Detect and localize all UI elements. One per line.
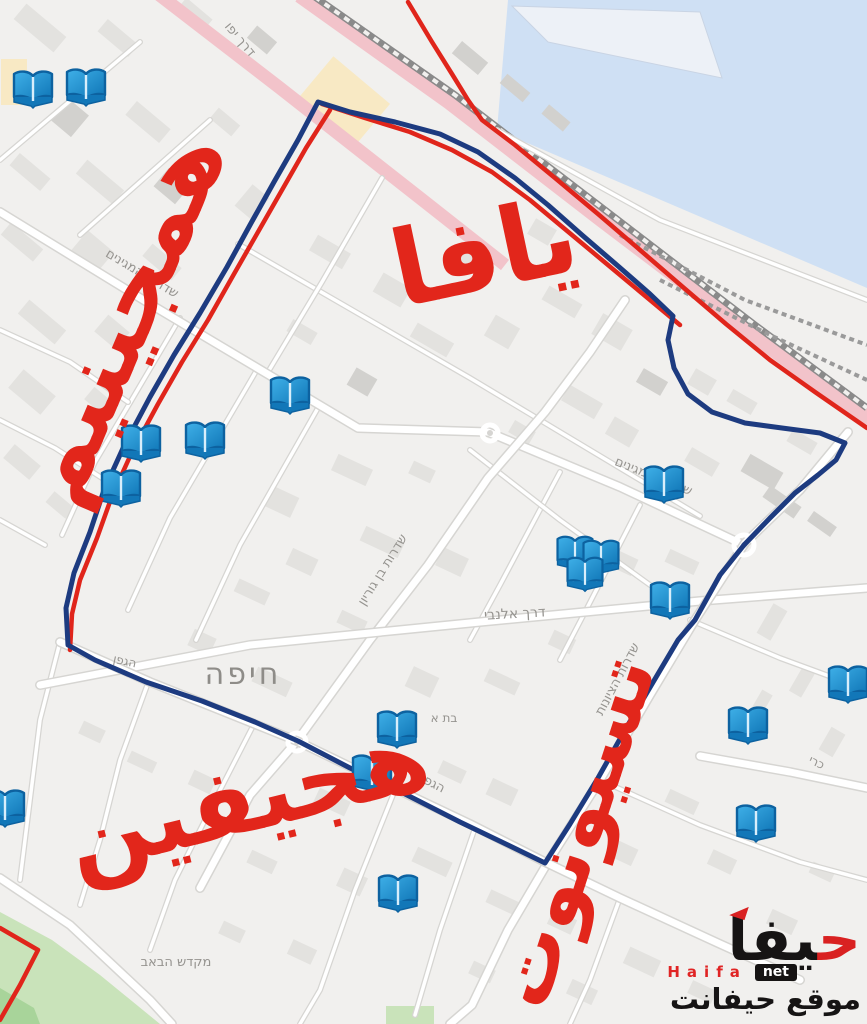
book-marker-icon[interactable] <box>379 876 417 912</box>
book-marker-icon[interactable] <box>14 72 52 108</box>
logo-tagline: موقع حيفانت <box>667 985 861 1014</box>
roundabout-island <box>487 430 493 436</box>
book-marker-icon[interactable] <box>0 791 24 827</box>
book-marker-icon[interactable] <box>651 583 689 619</box>
book-marker-icon[interactable] <box>67 70 105 106</box>
street-label-mikdash-habab: מקדש הבאב <box>141 955 212 970</box>
street-label-beit-a: בת א <box>431 711 458 725</box>
book-marker-icon[interactable] <box>737 806 775 842</box>
book-marker-icon[interactable] <box>186 423 224 459</box>
small-green-patch <box>386 1006 434 1024</box>
logo-arabic-initial: ح <box>818 905 861 975</box>
city-label-haifa: חיפה <box>205 657 282 692</box>
haifanet-logo-watermark: حيفا Haifa net موقع حيفانت <box>667 910 861 1014</box>
book-marker-icon[interactable] <box>568 558 603 592</box>
logo-arabic-wordmark: حيفا <box>667 910 861 970</box>
book-marker-icon[interactable] <box>829 667 867 703</box>
haifa-map-canvas: דרך יפושדרות המגיניםשדרות המגיניםשדרות ב… <box>0 0 867 1024</box>
map-viewport: דרך יפושדרות המגיניםשדרות המגיניםשדרות ב… <box>0 0 867 1024</box>
book-marker-icon[interactable] <box>271 378 309 414</box>
street-label-allenby: דרך אלנבי <box>484 604 547 623</box>
book-marker-icon[interactable] <box>729 708 767 744</box>
book-marker-icon[interactable] <box>645 467 683 503</box>
